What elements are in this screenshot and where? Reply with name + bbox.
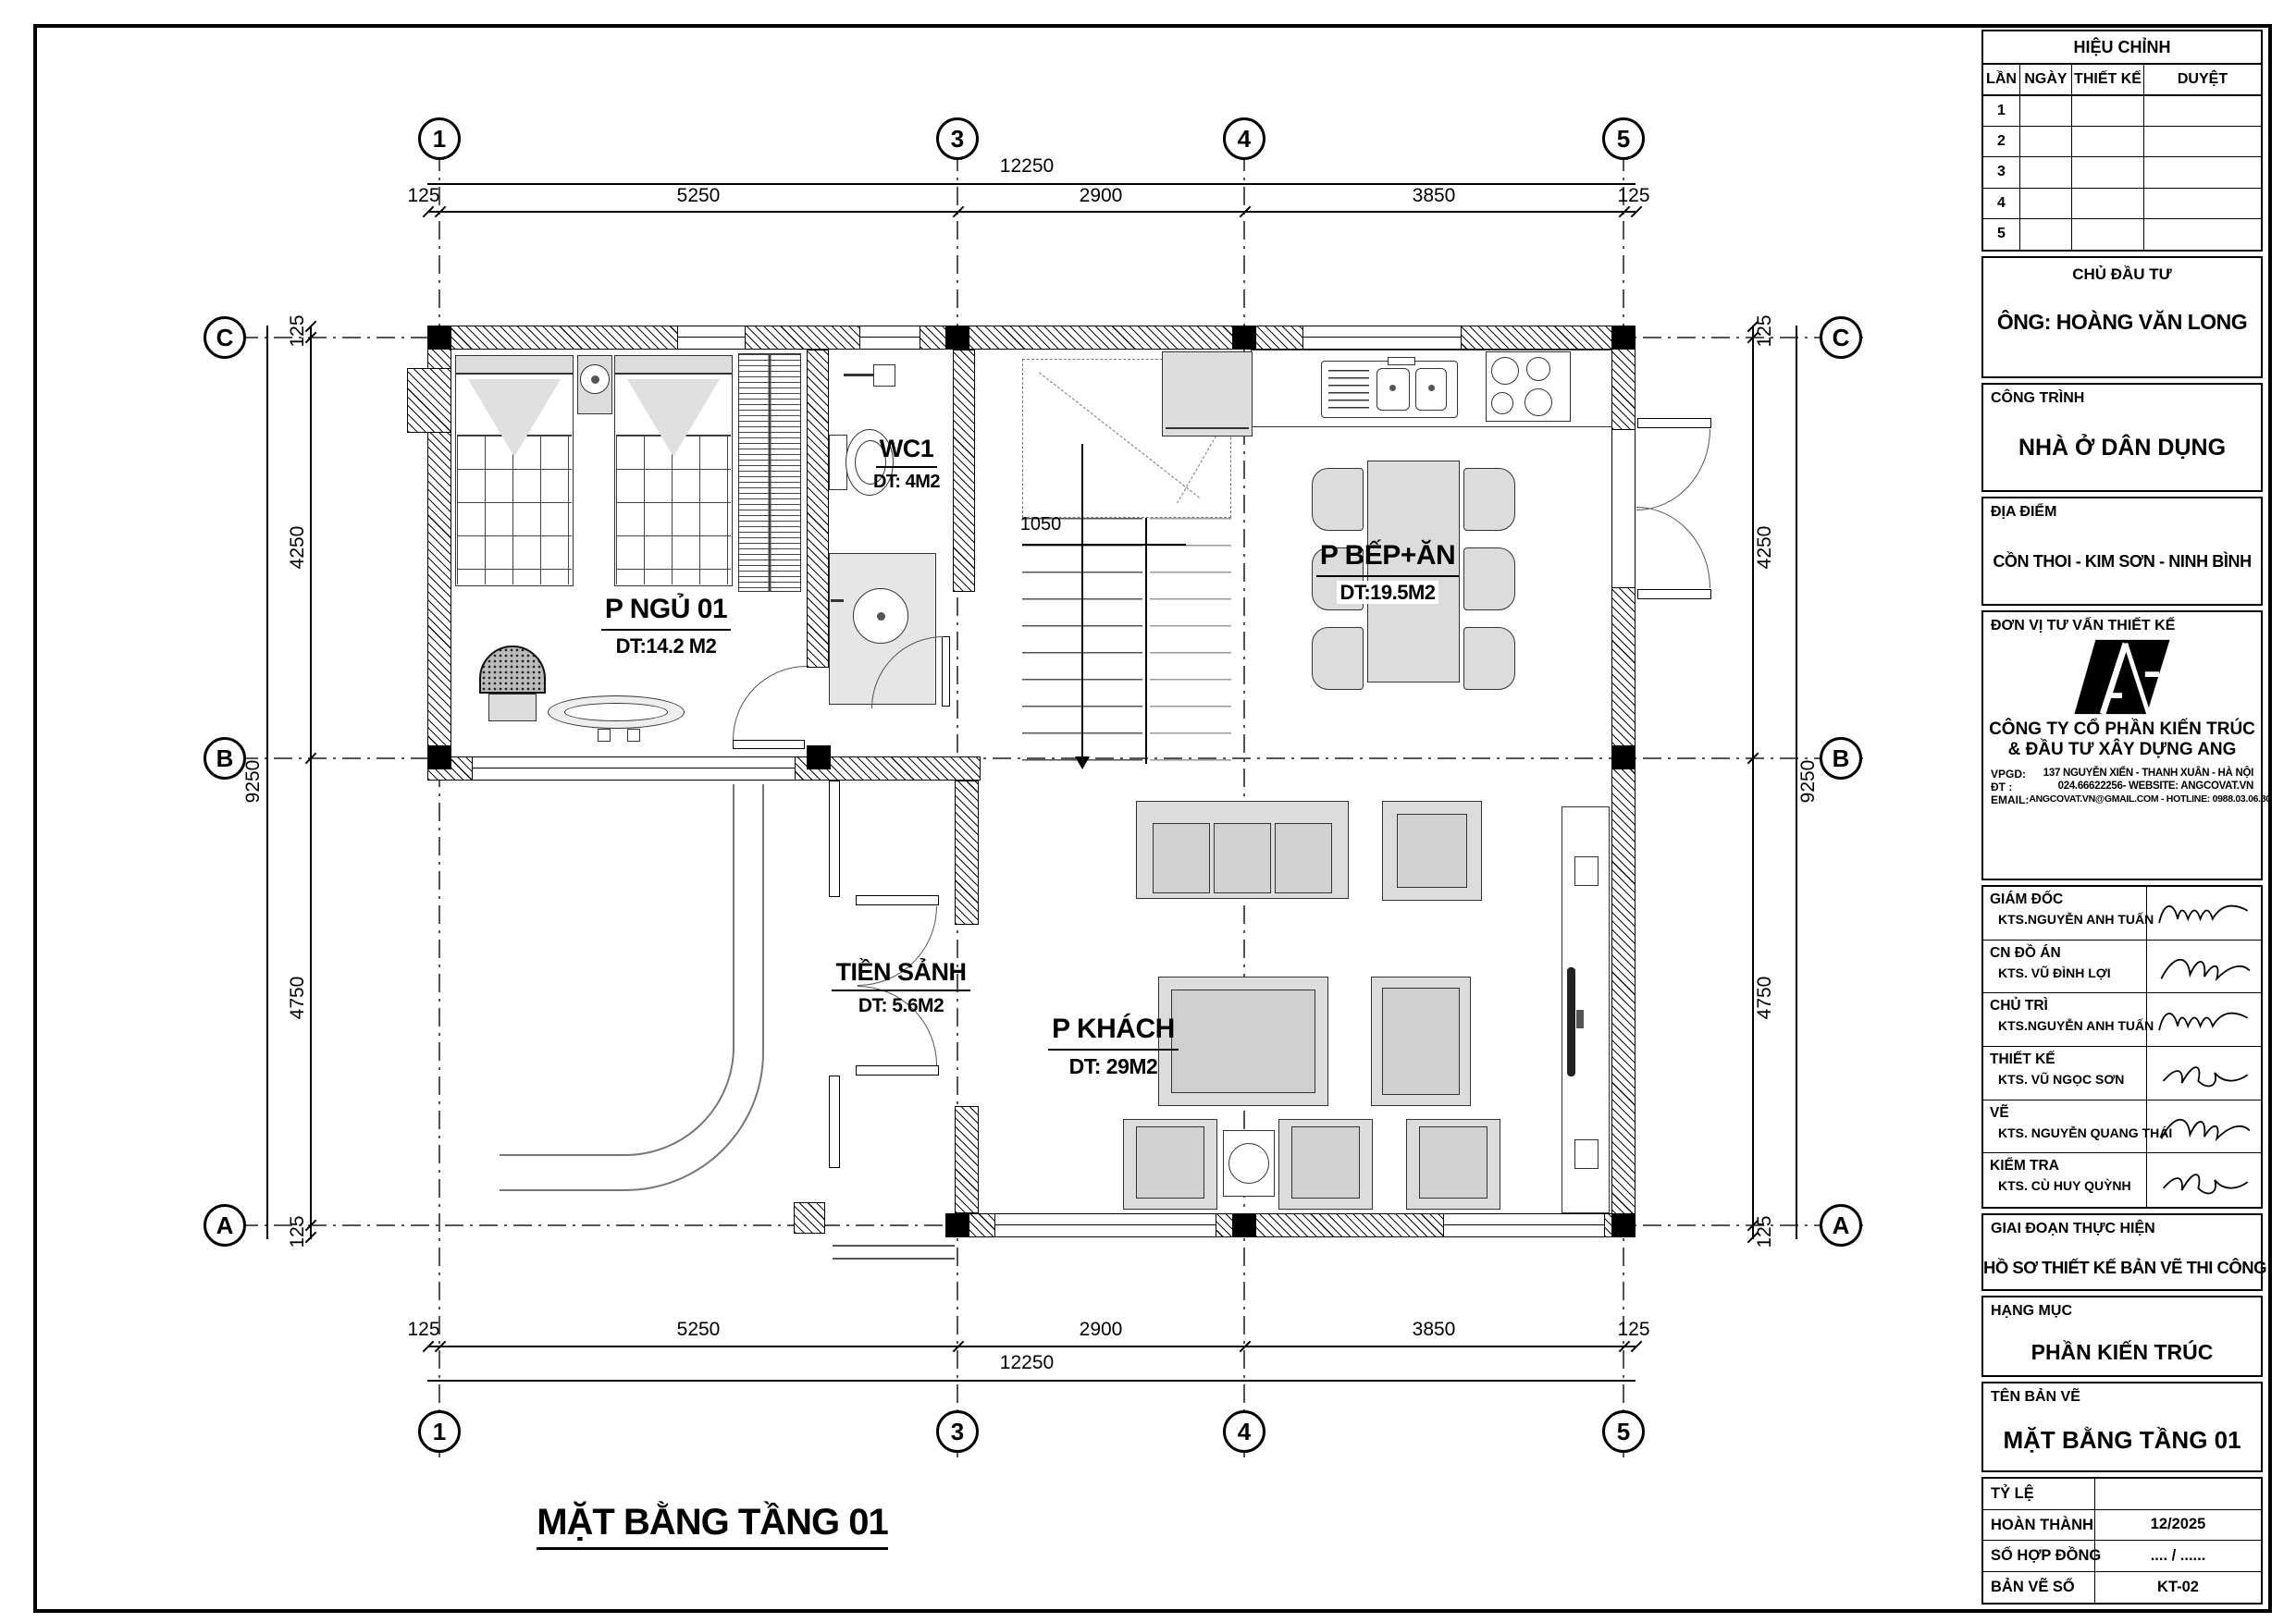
revision-row: 4 (1983, 189, 2261, 219)
signer-name: KTS. VŨ ĐÌNH LỢI (1983, 962, 2146, 980)
revision-cell (2020, 189, 2072, 218)
armchair-seat (1397, 814, 1467, 888)
porch-step (833, 1258, 955, 1260)
contact-label: EMAIL: (1991, 793, 2029, 806)
revision-cell (2144, 157, 2261, 187)
signer-name: KTS.NGUYỄN ANH TUẤN (1983, 908, 2146, 927)
dim-label: 4250 (1754, 492, 1776, 603)
revision-row: 5 (1983, 219, 2261, 250)
revision-number: 3 (1983, 157, 2020, 187)
bedroom-door-leaf (733, 740, 805, 749)
wall-hall-right-lower (955, 1106, 979, 1213)
meta-label: HOÀN THÀNH (1983, 1510, 2094, 1541)
dim-line-top-segments (427, 211, 1636, 213)
dining-chair (1312, 468, 1364, 531)
grid-bubble-5-bottom: 5 (1602, 1410, 1645, 1453)
company-name-line1: CÔNG TY CỔ PHẦN KIẾN TRÚC (1983, 719, 2261, 740)
signature (2146, 993, 2261, 1046)
armchair-seat (1136, 1126, 1204, 1199)
window-living-1 (994, 1213, 1216, 1237)
revision-cell (2144, 219, 2261, 250)
window-living-2 (1443, 1213, 1605, 1237)
drawing-name-section: TÊN BẢN VẼ MẶT BẰNG TẦNG 01 (1981, 1382, 2263, 1472)
faucet-icon (1388, 357, 1415, 365)
category-section: HẠNG MỤC PHẦN KIẾN TRÚC (1981, 1296, 2263, 1377)
signer-role: CN ĐỒ ÁN (1983, 941, 2146, 962)
room-label-living: P KHÁCH DT: 29M2 (1042, 1014, 1185, 1078)
column (427, 745, 451, 769)
wall-pilaster (407, 368, 451, 433)
speaker (1574, 856, 1599, 886)
sink-drain (1389, 385, 1396, 391)
room-label-kitchen: P BẾP+ĂN DT:19.5M2 (1290, 540, 1485, 604)
grid-bubble-3-top: 3 (936, 117, 979, 160)
room-name: WC1 (876, 435, 938, 468)
project-value: NHÀ Ở DÂN DỤNG (1983, 435, 2261, 461)
wall-entry-upper (829, 781, 840, 897)
stair-dim-line (1022, 544, 1186, 546)
tv-mount (1576, 1010, 1584, 1028)
wc-sink-drain (877, 612, 885, 621)
contact-row: VPGD: 137 NGUYỄN XIỂN - THANH XUÂN - HÀ … (1983, 768, 2261, 781)
bed-blanket (616, 435, 731, 584)
signer-row: KIỂM TRAKTS. CÙ HUY QUỲNH (1983, 1153, 2261, 1207)
lamp-center (591, 375, 599, 384)
revision-cell (2020, 96, 2072, 126)
dim-line-left-segments (310, 326, 312, 1239)
room-name: P KHÁCH (1048, 1014, 1179, 1051)
meta-value: KT-02 (2094, 1572, 2261, 1604)
side-table-top (1382, 988, 1460, 1095)
revision-cell (2072, 189, 2144, 218)
signature-icon (2153, 1054, 2256, 1091)
revision-cell (2072, 157, 2144, 187)
dim-label: 5250 (643, 185, 754, 207)
grid-bubble-1-top: 1 (418, 117, 461, 160)
project-label: CÔNG TRÌNH (1983, 385, 2261, 407)
dresser-mirror-inner (564, 703, 668, 721)
towel-box (873, 364, 895, 387)
balcony-door-leaf (1637, 418, 1711, 428)
grid-bubble-C-right: C (1820, 316, 1862, 359)
burner-icon (1491, 392, 1513, 414)
consultant-section: ĐƠN VỊ TƯ VẤN THIẾT KẾ CÔNG TY CỔ PHẦN K… (1981, 610, 2263, 880)
revision-cell (2144, 96, 2261, 126)
client-label: CHỦ ĐẦU TƯ (1983, 265, 2261, 284)
window-top-2 (859, 326, 920, 350)
revision-cell (2020, 157, 2072, 187)
phase-value: HỒ SƠ THIẾT KẾ BẢN VẼ THI CÔNG (1983, 1258, 2261, 1278)
meta-value: .... / ...... (2094, 1541, 2261, 1571)
wall-right-lower (1611, 587, 1636, 1237)
grid-bubble-label: A (216, 1211, 234, 1240)
dim-label: 125 (1606, 185, 1661, 207)
client-section: CHỦ ĐẦU TƯ ÔNG: HOÀNG VĂN LONG (1981, 256, 2263, 378)
dim-line-bottom-segments (427, 1346, 1636, 1347)
room-area: DT: 4M2 (851, 472, 962, 493)
room-area: DT: 5.6M2 (831, 995, 971, 1017)
toilet-tank (829, 435, 847, 490)
grid-bubble-label: 4 (1238, 1418, 1251, 1446)
signature-icon (2153, 1108, 2256, 1145)
grid-bubble-label: B (216, 744, 234, 773)
drawing-name-label: TÊN BẢN VẼ (1983, 1383, 2261, 1406)
revision-col: LẦN (1983, 65, 2020, 94)
wall-wc-left (807, 350, 829, 668)
grid-bubble-label: C (216, 324, 234, 352)
dining-chair (1312, 627, 1364, 690)
revision-col: NGÀY (2020, 65, 2072, 94)
porch-column (794, 1202, 825, 1234)
revision-number: 2 (1983, 127, 2020, 156)
contact-row: ĐT : 024.66622256- WEBSITE: ANGCOVAT.VN (1983, 781, 2261, 793)
dim-label: 125 (396, 185, 451, 207)
company-name-line2: & ĐẦU TƯ XÂY DỰNG ANG (1983, 740, 2261, 760)
window-kitchen (1302, 326, 1462, 350)
grid-bubble-label: 3 (951, 125, 964, 154)
sofa-cushion (1214, 823, 1271, 893)
door-opening-right (1611, 430, 1636, 587)
room-label-bedroom: P NGỦ 01 DT:14.2 M2 (555, 594, 777, 658)
plan-title: MẶT BẰNG TẦNG 01 (518, 1502, 907, 1550)
column (1232, 1213, 1256, 1237)
meta-row: HOÀN THÀNH12/2025 (1983, 1510, 2261, 1542)
room-label-hall: TIỀN SẢNH DT: 5.6M2 (831, 958, 971, 1017)
signature (2146, 1153, 2261, 1207)
meta-label: BẢN VẼ SỐ (1983, 1572, 2094, 1604)
grid-bubble-A-left: A (204, 1204, 246, 1247)
window-bedroom (472, 756, 796, 781)
revision-cell (2072, 219, 2144, 250)
signer-role: KIỂM TRA (1983, 1153, 2146, 1174)
dim-label: 2900 (1045, 1319, 1156, 1341)
signer-row: THIẾT KẾKTS. VŨ NGỌC SƠN (1983, 1047, 2261, 1100)
dim-label: 125 (1754, 276, 1776, 387)
dim-label: 12250 (953, 155, 1101, 178)
revision-title: HIỆU CHỈNH (1983, 31, 2261, 63)
signer-role: GIÁM ĐỐC (1983, 887, 2146, 908)
signature (2146, 1100, 2261, 1153)
bed-headboard (614, 355, 733, 374)
room-name: P BẾP+ĂN (1316, 540, 1459, 577)
dim-label: 9250 (1797, 726, 1820, 837)
grid-bubble-label: A (1833, 1211, 1850, 1240)
revision-cell (2020, 219, 2072, 250)
burner-icon (1524, 388, 1552, 416)
meta-row: SỐ HỢP ĐỒNG.... / ...... (1983, 1541, 2261, 1572)
grid-bubble-label: 5 (1617, 125, 1630, 154)
revision-cell (2144, 127, 2261, 156)
project-section: CÔNG TRÌNH NHÀ Ở DÂN DỤNG (1981, 383, 2263, 492)
grid-bubble-label: C (1833, 324, 1850, 352)
column (1611, 745, 1636, 769)
dim-label: 4750 (1754, 942, 1776, 1053)
dim-label: 4750 (287, 942, 309, 1053)
column (807, 745, 831, 769)
grid-bubble-label: 1 (433, 1418, 446, 1446)
title-block: HIỆU CHỈNH LẦN NGÀY THIẾT KẾ DUYỆT 1 2 3… (1981, 30, 2263, 1604)
contact-value: ANGCOVAT.VN@GMAIL.COM - HOTLINE: 0988.03… (2029, 793, 2271, 806)
stair-arrow-line (1081, 444, 1083, 758)
grid-bubble-label: 5 (1617, 1418, 1630, 1446)
signature (2146, 1047, 2261, 1100)
grid-bubble-label: 1 (433, 125, 446, 154)
signature-icon (2153, 1002, 2256, 1039)
client-value: ÔNG: HOÀNG VĂN LONG (1983, 310, 2261, 335)
dim-label: 4250 (287, 492, 309, 603)
signer-name: KTS. NGUYỄN QUANG THÁI (1983, 1122, 2146, 1140)
entry-door-leaf (856, 895, 939, 905)
sink-drainboard (1328, 370, 1369, 409)
drawing-name-value: MẶT BẰNG TẦNG 01 (1983, 1426, 2261, 1455)
dim-line-left-total (266, 326, 268, 1239)
wall-entry-lower (829, 1076, 840, 1168)
location-section: ĐỊA ĐIỂM CỒN THOI - KIM SƠN - NINH BÌNH (1981, 497, 2263, 606)
dim-label: 125 (287, 276, 309, 387)
bed-headboard (455, 355, 574, 374)
room-area: DT: 29M2 (1042, 1054, 1185, 1078)
dim-label: 3850 (1378, 1319, 1489, 1341)
bed-blanket (457, 435, 572, 584)
dim-label: 125 (396, 1319, 451, 1341)
kitchen-cabinet (1162, 351, 1253, 436)
dresser-leg (627, 729, 640, 742)
grid-bubble-5-top: 5 (1602, 117, 1645, 160)
signature (2146, 887, 2261, 940)
burner-icon (1526, 357, 1550, 381)
room-name: P NGỦ 01 (601, 594, 731, 631)
revision-row: 3 (1983, 157, 2261, 188)
signer-role: VẼ (1983, 1100, 2146, 1122)
grid-bubble-label: 3 (951, 1418, 964, 1446)
signer-name: KTS. CÙ HUY QUỲNH (1983, 1174, 2146, 1193)
speaker (1574, 1139, 1599, 1169)
dim-line-bottom-total (427, 1380, 1636, 1382)
consultant-label: ĐƠN VỊ TƯ VẤN THIẾT KẾ (1983, 612, 2261, 634)
grid-bubble-3-bottom: 3 (936, 1410, 979, 1453)
category-label: HẠNG MỤC (1983, 1297, 2261, 1320)
dim-label: 125 (1754, 1176, 1776, 1287)
drawing-sheet: 1 3 4 5 1 3 4 5 C B A C B A 12250 125 52… (0, 0, 2296, 1623)
dim-line-right-segments (1752, 326, 1754, 1239)
revision-cell (2020, 127, 2072, 156)
signature-icon (2153, 948, 2256, 985)
contact-label: ĐT : (1991, 781, 2012, 793)
dining-chair (1463, 627, 1515, 690)
grid-bubble-C-left: C (204, 316, 246, 359)
grid-bubble-4-bottom: 4 (1223, 1410, 1265, 1453)
signature-icon (2153, 894, 2256, 931)
cabinet-edge (1166, 427, 1249, 429)
dim-label: 125 (1606, 1319, 1661, 1341)
revision-cell (2072, 127, 2144, 156)
grid-line-4 (1243, 118, 1245, 1457)
dim-label: 9250 (242, 726, 265, 837)
balcony-door-leaf (1637, 589, 1711, 599)
grid-bubble-A-right: A (1820, 1204, 1862, 1247)
coffee-table-top (1171, 990, 1315, 1093)
revision-row: 1 (1983, 96, 2261, 127)
contact-value: 137 NGUYỄN XIỂN - THANH XUÂN - HÀ NỘI (2043, 768, 2253, 781)
company-logo-icon (2068, 638, 2176, 716)
revision-number: 5 (1983, 219, 2020, 250)
dim-label: 2900 (1045, 185, 1156, 207)
armchair-seat (1291, 1126, 1360, 1199)
signer-role: THIẾT KẾ (1983, 1047, 2146, 1068)
contact-label: VPGD: (1991, 768, 2026, 781)
signature-icon (2153, 1162, 2256, 1199)
grid-bubble-label: 4 (1238, 125, 1251, 154)
contact-value: 024.66622256- WEBSITE: ANGCOVAT.VN (2058, 781, 2253, 793)
phase-section: GIAI ĐOẠN THỰC HIỆN HỒ SƠ THIẾT KẾ BẢN V… (1981, 1213, 2263, 1291)
plan-title-text: MẶT BẰNG TẦNG 01 (537, 1502, 888, 1550)
stair-flight-above (1150, 518, 1231, 764)
phase-label: GIAI ĐOẠN THỰC HIỆN (1983, 1215, 2261, 1237)
grid-line-1 (438, 118, 440, 1457)
revision-table: HIỆU CHỈNH LẦN NGÀY THIẾT KẾ DUYỆT 1 2 3… (1981, 30, 2263, 252)
column (1232, 326, 1256, 350)
meta-row: BẢN VẼ SỐKT-02 (1983, 1572, 2261, 1604)
column (1611, 326, 1636, 350)
revision-number: 4 (1983, 189, 2020, 218)
grid-bubble-4-top: 4 (1223, 117, 1265, 160)
location-value: CỒN THOI - KIM SƠN - NINH BÌNH (1983, 552, 2261, 572)
signer-row: CN ĐỒ ÁNKTS. VŨ ĐÌNH LỢI (1983, 941, 2261, 994)
meta-row: TỶ LỆ (1983, 1479, 2261, 1510)
small-table-plant (1228, 1143, 1269, 1184)
dim-label: 3850 (1378, 185, 1489, 207)
grid-bubble-1-bottom: 1 (418, 1410, 461, 1453)
meta-value (2094, 1479, 2261, 1509)
category-value: PHẦN KIẾN TRÚC (1983, 1340, 2261, 1365)
signer-name: KTS.NGUYỄN ANH TUẤN (1983, 1014, 2146, 1033)
signature (2146, 941, 2261, 993)
towel-bar (844, 374, 877, 376)
grid-bubble-B-left: B (204, 737, 246, 780)
entry-door-leaf (856, 1065, 939, 1076)
revision-row: 2 (1983, 127, 2261, 157)
armchair-base (488, 694, 537, 721)
signers-section: GIÁM ĐỐCKTS.NGUYỄN ANH TUẤN CN ĐỒ ÁNKTS.… (1981, 885, 2263, 1209)
revision-header: LẦN NGÀY THIẾT KẾ DUYỆT (1983, 63, 2261, 96)
meta-label: TỶ LỆ (1983, 1479, 2094, 1509)
dresser-leg (598, 729, 611, 742)
armchair-seat (1419, 1126, 1487, 1199)
wall-hall-right-upper (955, 781, 979, 925)
column (945, 326, 969, 350)
meta-label: SỐ HỢP ĐỒNG (1983, 1541, 2094, 1571)
sink-drain (1428, 385, 1435, 391)
dim-label: 5250 (643, 1319, 754, 1341)
porch-path-inner (500, 784, 734, 1156)
signer-row: VẼKTS. NGUYỄN QUANG THÁI (1983, 1100, 2261, 1154)
contact-row: EMAIL: ANGCOVAT.VN@GMAIL.COM - HOTLINE: … (1983, 793, 2261, 806)
revision-cell (2072, 96, 2144, 126)
column (945, 1213, 969, 1237)
dim-label: 12250 (953, 1352, 1101, 1374)
grid-bubble-B-right: B (1820, 737, 1862, 780)
room-area: DT:19.5M2 (1337, 581, 1438, 604)
dining-chair (1463, 468, 1515, 531)
column (1611, 1213, 1636, 1237)
revision-col: THIẾT KẾ (2072, 65, 2144, 94)
revision-cell (2144, 189, 2261, 218)
signer-name: KTS. VŨ NGỌC SƠN (1983, 1068, 2146, 1087)
stair-arrow-head (1075, 756, 1090, 769)
signer-row: GIÁM ĐỐCKTS.NGUYỄN ANH TUẤN (1983, 887, 2261, 941)
sofa-cushion (1153, 823, 1210, 893)
grid-bubble-label: B (1833, 744, 1850, 773)
signer-row: CHỦ TRÌKTS.NGUYỄN ANH TUẤN (1983, 993, 2261, 1047)
sofa-cushion (1275, 823, 1332, 893)
location-label: ĐỊA ĐIỂM (1983, 498, 2261, 521)
wardrobe (738, 353, 801, 592)
column (427, 326, 451, 350)
room-name: TIỀN SẢNH (832, 958, 969, 991)
stair-divider (1145, 518, 1147, 764)
tv-icon (1567, 967, 1575, 1076)
stair-dim-label: 1050 (1004, 514, 1078, 535)
room-area: DT:14.2 M2 (555, 634, 777, 658)
burner-icon (1491, 357, 1519, 385)
revision-col: DUYỆT (2144, 65, 2261, 94)
faucet-icon (831, 599, 844, 602)
meta-table: TỶ LỆ HOÀN THÀNH12/2025 SỐ HỢP ĐỒNG.... … (1981, 1477, 2263, 1605)
room-label-wc: WC1 DT: 4M2 (851, 435, 962, 493)
porch-step (833, 1245, 955, 1247)
signer-role: CHỦ TRÌ (1983, 993, 2146, 1014)
meta-value: 12/2025 (2094, 1510, 2261, 1541)
window-top-1 (677, 326, 746, 350)
dim-label: 125 (287, 1176, 309, 1287)
revision-number: 1 (1983, 96, 2020, 126)
